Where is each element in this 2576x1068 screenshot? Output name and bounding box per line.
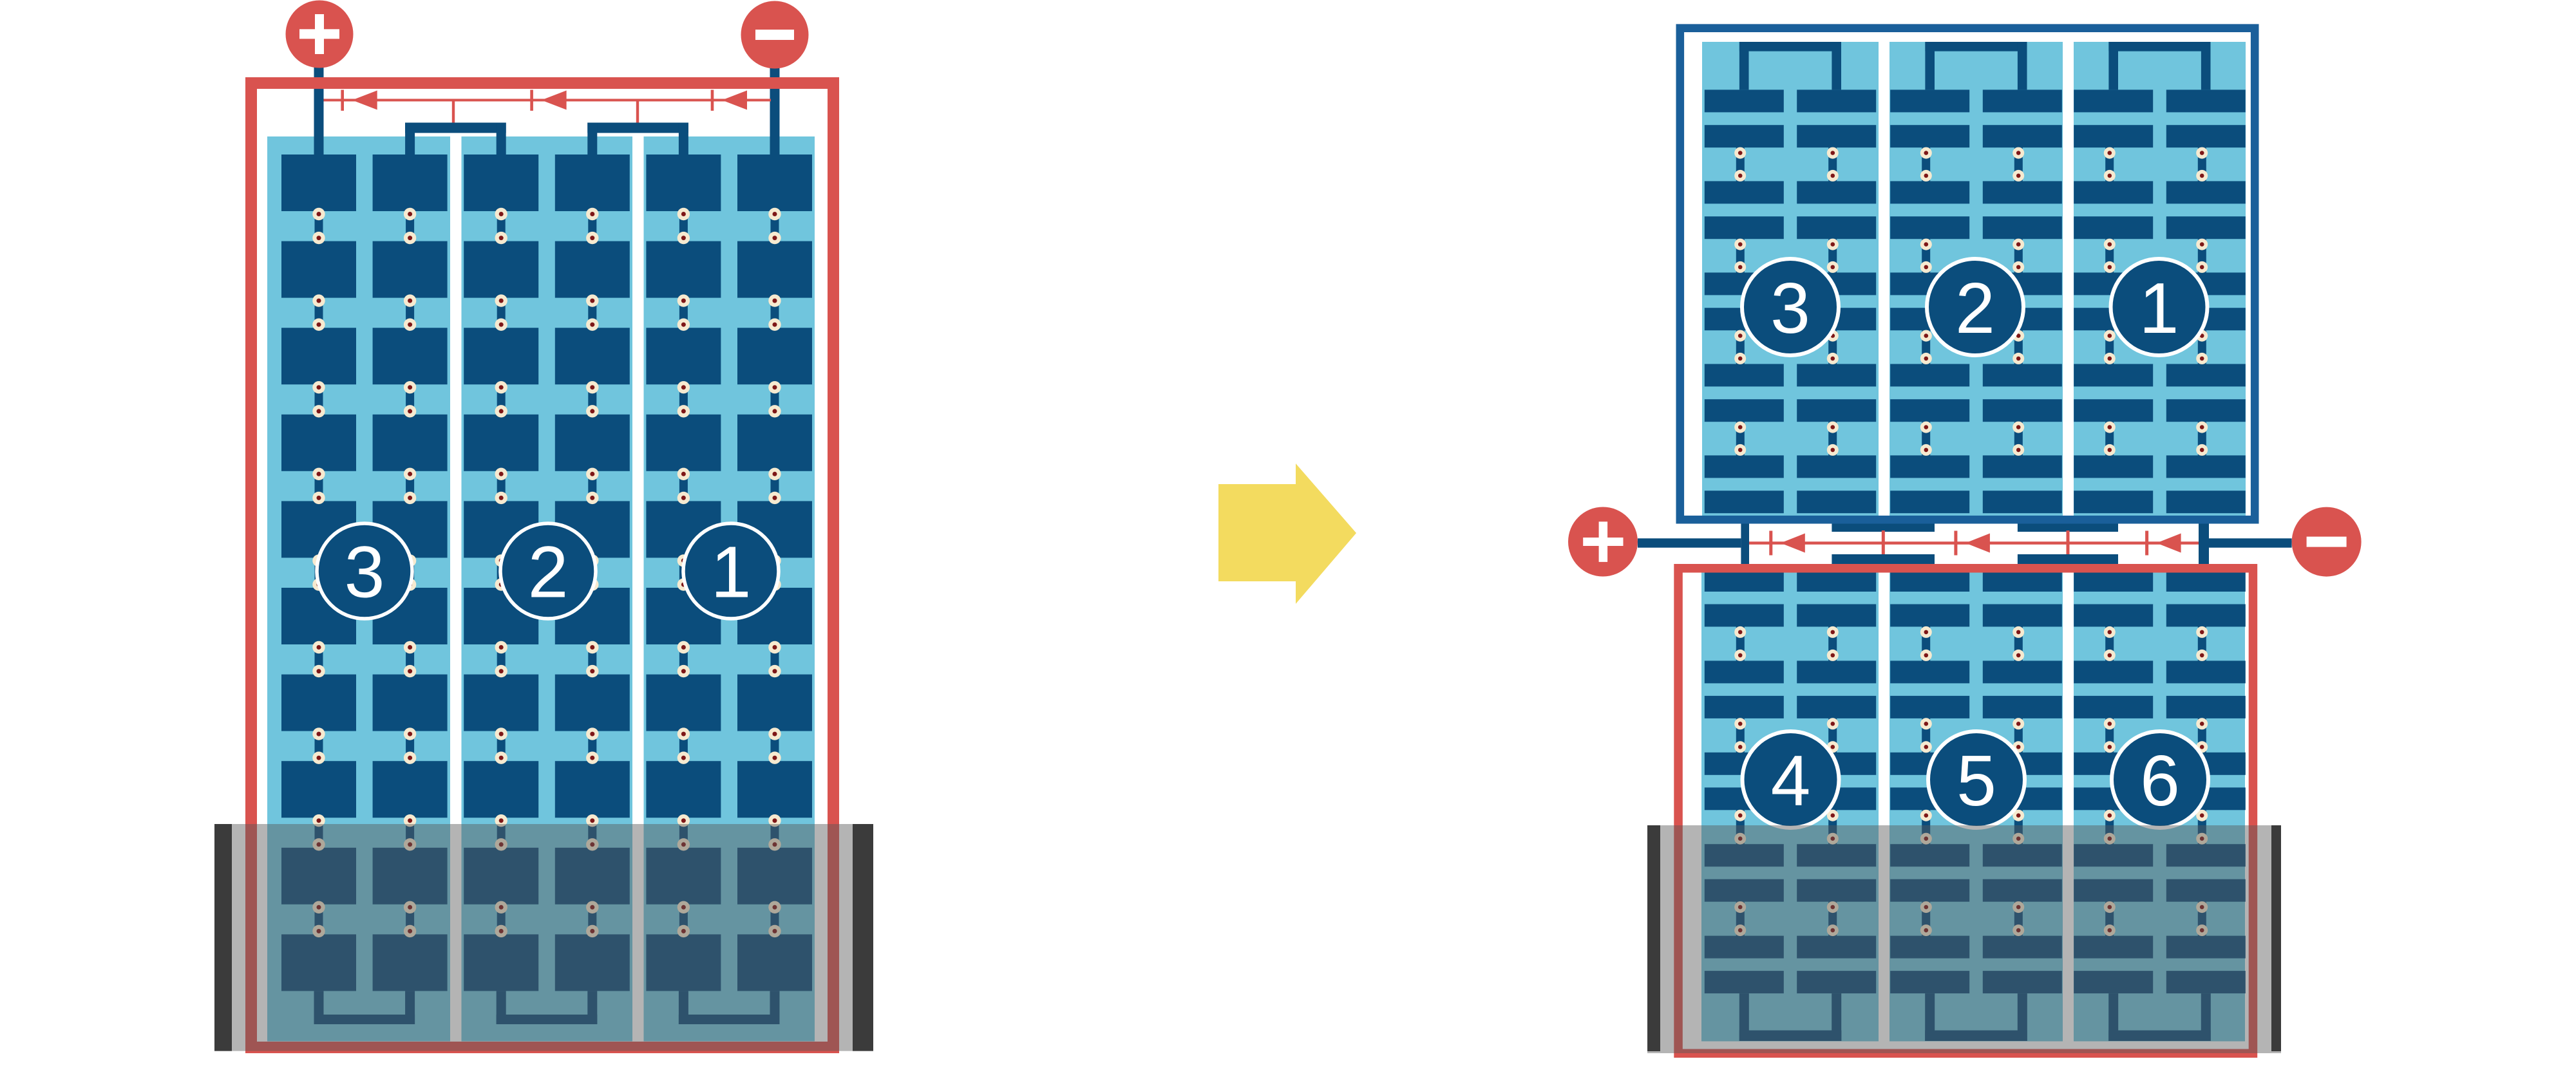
svg-text:4: 4 <box>1771 741 1811 821</box>
svg-text:2: 2 <box>528 532 569 613</box>
svg-text:3: 3 <box>345 532 385 613</box>
svg-text:6: 6 <box>2140 741 2180 821</box>
svg-text:3: 3 <box>1770 268 1810 348</box>
svg-text:2: 2 <box>1955 268 1995 348</box>
svg-text:1: 1 <box>2139 268 2179 348</box>
svg-text:5: 5 <box>1956 741 1996 821</box>
svg-text:1: 1 <box>711 532 752 613</box>
